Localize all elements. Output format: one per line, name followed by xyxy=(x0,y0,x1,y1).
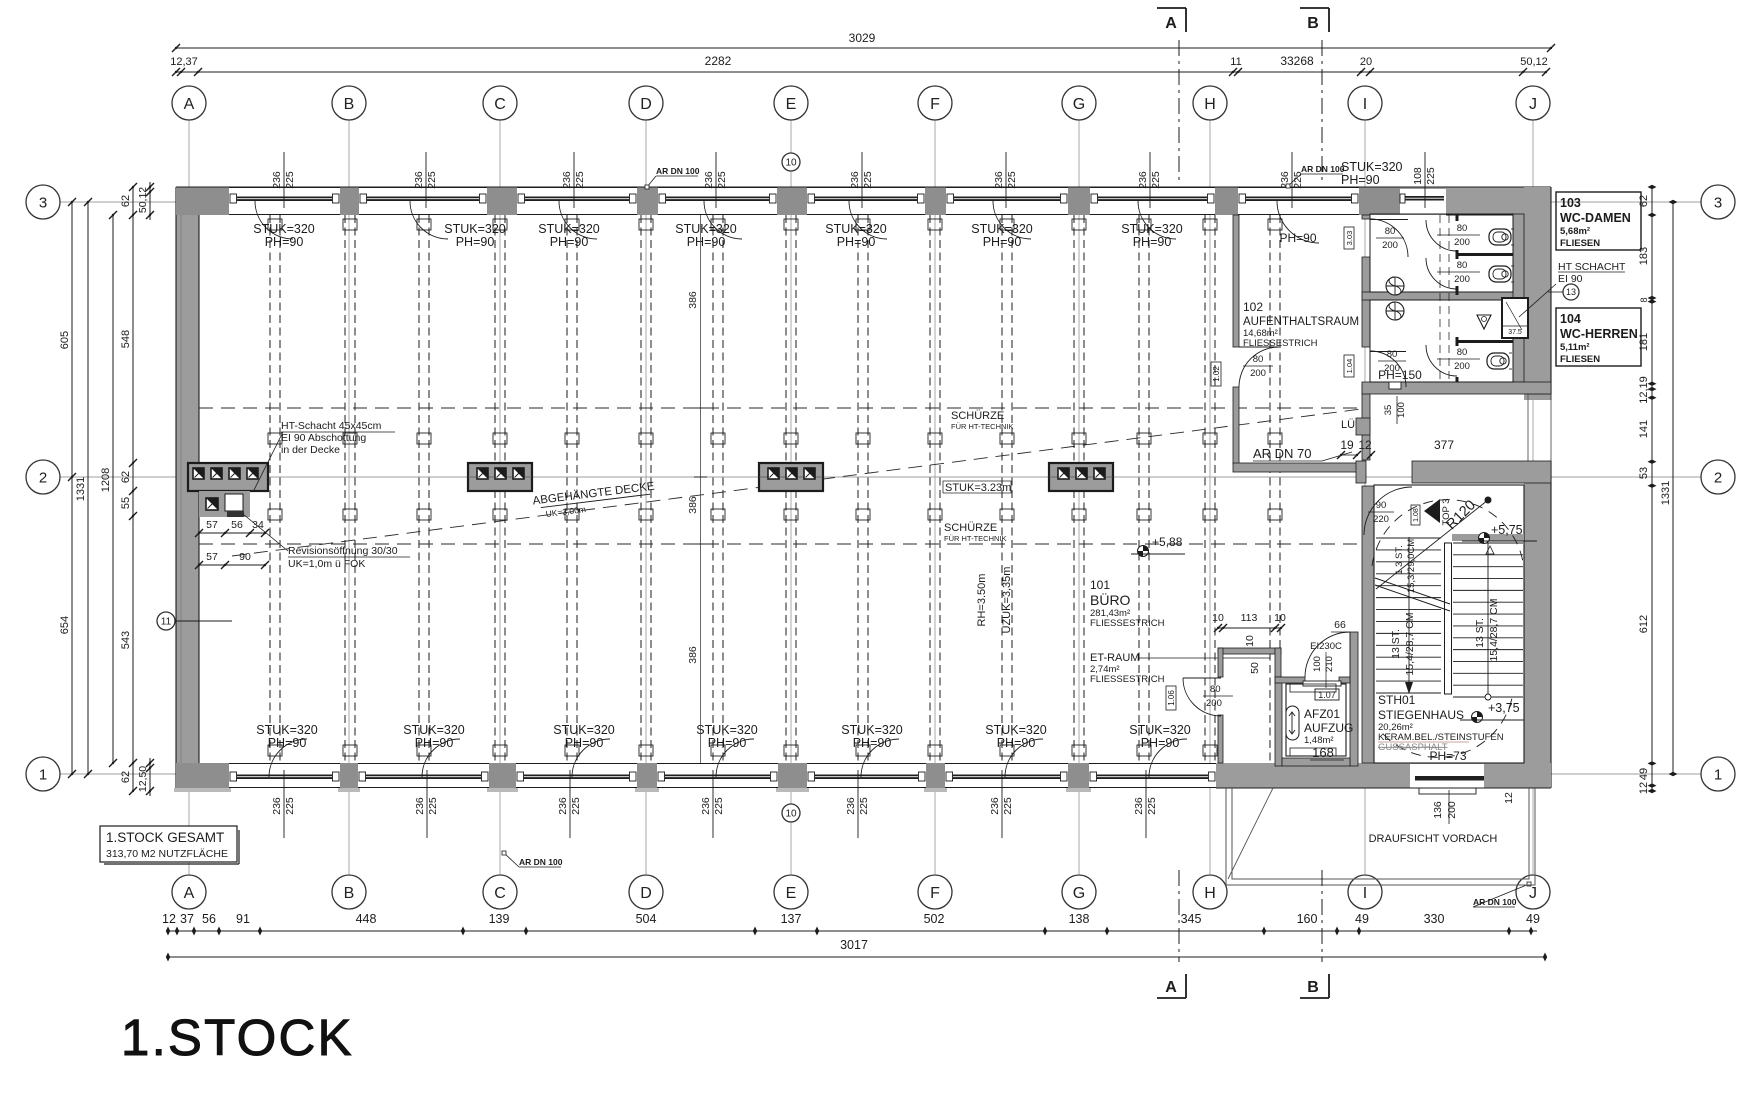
svg-text:AR DN 100: AR DN 100 xyxy=(519,857,563,867)
svg-text:PH=90: PH=90 xyxy=(983,235,1022,249)
svg-text:15,4/28,7 CM: 15,4/28,7 CM xyxy=(1404,612,1416,675)
svg-text:236: 236 xyxy=(989,797,1001,815)
svg-text:FLIESSESTRICH: FLIESSESTRICH xyxy=(1090,618,1165,629)
svg-text:104: 104 xyxy=(1560,312,1581,326)
svg-text:37: 37 xyxy=(180,912,194,926)
svg-text:12,37: 12,37 xyxy=(170,56,198,68)
svg-text:49: 49 xyxy=(1638,768,1650,780)
svg-text:STIEGENHAUS: STIEGENHAUS xyxy=(1378,708,1464,722)
svg-text:3.03: 3.03 xyxy=(1345,231,1354,246)
svg-text:F: F xyxy=(930,885,940,902)
svg-text:80: 80 xyxy=(1457,223,1468,234)
svg-text:1: 1 xyxy=(1714,766,1722,783)
svg-text:181: 181 xyxy=(1638,333,1650,351)
svg-text:225: 225 xyxy=(862,171,874,189)
svg-text:56: 56 xyxy=(202,912,216,926)
svg-text:FÜR HT-TECHNIK: FÜR HT-TECHNIK xyxy=(951,422,1014,431)
svg-text:53: 53 xyxy=(1638,467,1650,479)
svg-text:225: 225 xyxy=(1002,797,1014,815)
svg-text:200: 200 xyxy=(1446,801,1458,819)
svg-text:225: 225 xyxy=(1146,797,1158,815)
svg-text:HT SCHACHT: HT SCHACHT xyxy=(1558,261,1626,273)
svg-text:236: 236 xyxy=(414,797,426,815)
svg-text:G: G xyxy=(1073,96,1085,113)
svg-text:3: 3 xyxy=(39,194,47,211)
svg-text:502: 502 xyxy=(924,912,945,926)
svg-text:100: 100 xyxy=(1312,656,1323,672)
svg-text:SCHÜRZE: SCHÜRZE xyxy=(951,410,1004,422)
svg-text:50,12: 50,12 xyxy=(1520,56,1548,68)
svg-text:236: 236 xyxy=(413,171,425,189)
svg-text:I: I xyxy=(1363,885,1367,902)
svg-text:FLIESSESTRICH: FLIESSESTRICH xyxy=(1243,338,1318,349)
svg-text:WC-DAMEN: WC-DAMEN xyxy=(1560,211,1631,225)
svg-text:13: 13 xyxy=(1566,287,1576,297)
svg-text:STUK=320: STUK=320 xyxy=(256,723,318,737)
svg-text:11: 11 xyxy=(1230,56,1241,68)
svg-text:F: F xyxy=(930,96,940,113)
svg-text:UZUK=3,35m: UZUK=3,35m xyxy=(1001,567,1013,634)
svg-text:STUK=320: STUK=320 xyxy=(1121,222,1183,236)
svg-text:225: 225 xyxy=(427,797,439,815)
svg-text:1.04: 1.04 xyxy=(1345,359,1354,374)
svg-text:B: B xyxy=(1307,979,1319,996)
svg-text:103: 103 xyxy=(1560,196,1581,210)
svg-text:1208: 1208 xyxy=(100,468,112,492)
svg-text:168: 168 xyxy=(1312,745,1334,760)
svg-text:ET-RAUM: ET-RAUM xyxy=(1090,652,1140,664)
svg-text:AR DN 70: AR DN 70 xyxy=(1253,446,1312,461)
svg-text:FLIESEN: FLIESEN xyxy=(1560,354,1600,365)
svg-text:200: 200 xyxy=(1206,698,1222,709)
svg-text:10: 10 xyxy=(1274,612,1286,624)
svg-text:B: B xyxy=(344,885,355,902)
svg-text:AUFENTHALTSRAUM: AUFENTHALTSRAUM xyxy=(1243,316,1359,328)
svg-text:200: 200 xyxy=(1454,237,1470,248)
svg-text:1331: 1331 xyxy=(1660,481,1672,505)
svg-text:TOP 3: TOP 3 xyxy=(1441,498,1452,525)
svg-text:AFZ01: AFZ01 xyxy=(1304,707,1340,721)
svg-text:3: 3 xyxy=(1714,194,1722,211)
svg-text:3017: 3017 xyxy=(840,938,868,952)
svg-text:55: 55 xyxy=(120,497,132,509)
svg-text:Revisionsöffnung 30/30: Revisionsöffnung 30/30 xyxy=(288,545,398,557)
svg-text:37.5: 37.5 xyxy=(1508,329,1522,336)
svg-text:PH=150: PH=150 xyxy=(1378,368,1422,382)
svg-text:225: 225 xyxy=(1425,167,1437,185)
svg-text:B: B xyxy=(1307,15,1319,32)
svg-text:62: 62 xyxy=(1638,195,1650,207)
svg-text:WC-HERREN: WC-HERREN xyxy=(1560,327,1638,341)
svg-text:12: 12 xyxy=(1638,782,1650,794)
svg-text:141: 141 xyxy=(1638,420,1650,438)
svg-text:E: E xyxy=(786,96,797,113)
svg-text:STUK=320: STUK=320 xyxy=(985,723,1047,737)
svg-text:313,70 M2 NUTZFLÄCHE: 313,70 M2 NUTZFLÄCHE xyxy=(106,848,228,860)
svg-text:56: 56 xyxy=(231,519,243,531)
svg-text:13 ST.: 13 ST. xyxy=(1474,618,1486,648)
svg-text:80: 80 xyxy=(1457,347,1468,358)
svg-text:UK=1,0m ü FOK: UK=1,0m ü FOK xyxy=(288,558,365,570)
svg-text:PH=90: PH=90 xyxy=(268,736,307,750)
svg-text:225: 225 xyxy=(574,171,586,189)
svg-text:+3,75: +3,75 xyxy=(1488,701,1520,715)
svg-text:D: D xyxy=(640,885,652,902)
svg-text:13 ST.: 13 ST. xyxy=(1390,629,1402,659)
svg-text:1331: 1331 xyxy=(75,477,87,501)
svg-text:100: 100 xyxy=(1396,402,1407,418)
svg-text:35: 35 xyxy=(1383,405,1394,416)
svg-text:113: 113 xyxy=(1241,612,1258,624)
svg-text:G: G xyxy=(1073,885,1085,902)
svg-text:101: 101 xyxy=(1090,578,1110,592)
svg-text:12,50: 12,50 xyxy=(137,766,149,792)
svg-text:5,11m²: 5,11m² xyxy=(1560,342,1590,353)
svg-text:EI 90 Abschottung: EI 90 Abschottung xyxy=(281,432,366,444)
svg-text:345: 345 xyxy=(1181,912,1202,926)
svg-text:225: 225 xyxy=(858,797,870,815)
svg-text:BÜRO: BÜRO xyxy=(1090,591,1131,608)
svg-text:STUK=3.23m: STUK=3.23m xyxy=(945,482,1011,494)
svg-text:STUK=320: STUK=320 xyxy=(825,222,887,236)
svg-text:AUFZUG: AUFZUG xyxy=(1304,721,1353,735)
svg-text:J: J xyxy=(1529,96,1537,113)
svg-text:200: 200 xyxy=(1250,368,1266,379)
svg-text:1.07: 1.07 xyxy=(1318,690,1336,700)
svg-text:H: H xyxy=(1204,885,1216,902)
svg-text:605: 605 xyxy=(59,331,71,349)
svg-text:386: 386 xyxy=(687,291,699,309)
svg-text:A: A xyxy=(1165,979,1177,996)
svg-text:236: 236 xyxy=(703,171,715,189)
svg-text:15,3/29,0CM: 15,3/29,0CM xyxy=(1406,539,1417,593)
svg-text:50,12: 50,12 xyxy=(137,187,149,213)
svg-text:548: 548 xyxy=(120,330,132,348)
svg-text:386: 386 xyxy=(687,646,699,664)
svg-text:225: 225 xyxy=(426,171,438,189)
svg-text:STUK=320: STUK=320 xyxy=(1341,160,1403,174)
svg-text:136: 136 xyxy=(1432,801,1444,819)
svg-text:FLIESSESTRICH: FLIESSESTRICH xyxy=(1090,674,1165,685)
svg-text:STUK=320: STUK=320 xyxy=(675,222,737,236)
svg-text:PH=90: PH=90 xyxy=(1133,235,1172,249)
svg-text:236: 236 xyxy=(561,171,573,189)
svg-text:220: 220 xyxy=(1373,514,1389,525)
svg-text:137: 137 xyxy=(781,912,802,926)
svg-text:in der Decke: in der Decke xyxy=(281,444,340,456)
svg-text:236: 236 xyxy=(271,797,283,815)
svg-text:543: 543 xyxy=(120,631,132,649)
svg-text:AR DN 100: AR DN 100 xyxy=(656,166,700,176)
svg-text:+5,75: +5,75 xyxy=(1491,523,1523,537)
svg-text:2: 2 xyxy=(39,469,47,486)
svg-text:PH=90: PH=90 xyxy=(415,736,454,750)
svg-text:STUK=320: STUK=320 xyxy=(1129,723,1191,737)
svg-text:PH=90: PH=90 xyxy=(853,736,892,750)
svg-text:PH=90: PH=90 xyxy=(1341,173,1380,187)
svg-text:STUK=320: STUK=320 xyxy=(444,222,506,236)
svg-text:1.06: 1.06 xyxy=(1167,690,1176,706)
svg-text:10: 10 xyxy=(785,809,797,820)
svg-text:49: 49 xyxy=(1355,912,1369,926)
svg-text:20: 20 xyxy=(1360,56,1372,68)
svg-text:200: 200 xyxy=(1382,240,1398,251)
svg-text:504: 504 xyxy=(636,912,657,926)
svg-text:10: 10 xyxy=(1212,612,1224,624)
svg-text:200: 200 xyxy=(1454,274,1470,285)
svg-text:STUK=320: STUK=320 xyxy=(538,222,600,236)
svg-text:34: 34 xyxy=(252,519,264,531)
svg-text:80: 80 xyxy=(1387,349,1398,360)
svg-text:2: 2 xyxy=(1714,469,1722,486)
svg-text:+5,88: +5,88 xyxy=(1152,535,1183,549)
svg-text:225: 225 xyxy=(1006,171,1018,189)
svg-text:E: E xyxy=(786,885,797,902)
svg-text:236: 236 xyxy=(1133,797,1145,815)
svg-text:C: C xyxy=(494,96,506,113)
svg-text:PH=90: PH=90 xyxy=(456,235,495,249)
svg-text:80: 80 xyxy=(1210,684,1221,695)
svg-text:108: 108 xyxy=(1412,167,1424,185)
svg-text:PH=90: PH=90 xyxy=(837,235,876,249)
svg-text:236: 236 xyxy=(845,797,857,815)
svg-text:LÜ: LÜ xyxy=(1341,419,1355,431)
svg-text:62: 62 xyxy=(120,771,132,783)
svg-text:12: 12 xyxy=(162,912,176,926)
svg-text:STH01: STH01 xyxy=(1378,693,1416,707)
svg-text:19: 19 xyxy=(1340,438,1354,452)
svg-text:448: 448 xyxy=(356,912,377,926)
svg-text:612: 612 xyxy=(1638,615,1650,633)
svg-text:62: 62 xyxy=(120,471,132,483)
svg-text:80: 80 xyxy=(1253,354,1264,365)
svg-text:90: 90 xyxy=(239,551,251,563)
svg-text:12: 12 xyxy=(1358,438,1372,452)
svg-text:5,68m²: 5,68m² xyxy=(1560,226,1590,237)
svg-text:PH=73: PH=73 xyxy=(1429,749,1466,763)
svg-text:PH=90: PH=90 xyxy=(265,235,304,249)
svg-text:STUK=320: STUK=320 xyxy=(553,723,615,737)
svg-text:8: 8 xyxy=(1639,297,1649,302)
svg-text:15,4/28,7 CM: 15,4/28,7 CM xyxy=(1488,598,1500,661)
svg-text:EI230C: EI230C xyxy=(1310,641,1342,652)
svg-text:STUK=320: STUK=320 xyxy=(403,723,465,737)
svg-text:PH=90: PH=90 xyxy=(997,736,1036,750)
svg-text:PH=90: PH=90 xyxy=(550,235,589,249)
svg-text:1.02: 1.02 xyxy=(1212,366,1221,382)
svg-text:PH=90: PH=90 xyxy=(565,736,604,750)
svg-text:330: 330 xyxy=(1424,912,1445,926)
svg-text:66: 66 xyxy=(1334,619,1346,631)
svg-text:D: D xyxy=(640,96,652,113)
svg-text:PH=90: PH=90 xyxy=(687,235,726,249)
svg-text:33268: 33268 xyxy=(1280,54,1314,68)
svg-text:H: H xyxy=(1204,96,1216,113)
svg-text:PH=90: PH=90 xyxy=(708,736,747,750)
svg-text:57: 57 xyxy=(206,551,218,563)
svg-text:225: 225 xyxy=(1150,171,1162,189)
svg-text:STUK=320: STUK=320 xyxy=(971,222,1033,236)
svg-text:386: 386 xyxy=(687,496,699,514)
svg-text:62: 62 xyxy=(120,195,132,207)
svg-text:102: 102 xyxy=(1243,300,1263,314)
svg-text:236: 236 xyxy=(700,797,712,815)
svg-text:3029: 3029 xyxy=(849,31,876,45)
svg-text:STUK=320: STUK=320 xyxy=(696,723,758,737)
svg-text:236: 236 xyxy=(557,797,569,815)
svg-text:50: 50 xyxy=(1249,662,1261,674)
svg-text:654: 654 xyxy=(59,616,71,634)
svg-text:12,19: 12,19 xyxy=(1638,376,1650,404)
svg-text:377: 377 xyxy=(1434,438,1454,452)
svg-text:49: 49 xyxy=(1526,912,1540,926)
svg-text:1.STOCK GESAMT: 1.STOCK GESAMT xyxy=(106,830,224,845)
svg-text:225: 225 xyxy=(284,797,296,815)
svg-text:C: C xyxy=(494,885,506,902)
svg-text:11: 11 xyxy=(161,617,172,628)
svg-text:RH=3.50m: RH=3.50m xyxy=(976,574,988,627)
svg-text:1.STOCK: 1.STOCK xyxy=(121,1009,354,1066)
svg-text:236: 236 xyxy=(849,171,861,189)
svg-text:225: 225 xyxy=(716,171,728,189)
svg-text:1: 1 xyxy=(39,766,47,783)
svg-text:A: A xyxy=(184,96,195,113)
svg-text:A: A xyxy=(184,885,195,902)
svg-text:AR DN 100: AR DN 100 xyxy=(1473,897,1517,907)
svg-text:225: 225 xyxy=(713,797,725,815)
svg-text:J: J xyxy=(1529,885,1537,902)
svg-text:B: B xyxy=(344,96,355,113)
svg-text:10: 10 xyxy=(785,158,797,169)
svg-text:90: 90 xyxy=(1376,500,1387,511)
svg-text:200: 200 xyxy=(1454,361,1470,372)
svg-text:236: 236 xyxy=(993,171,1005,189)
svg-text:PH=90: PH=90 xyxy=(1141,736,1180,750)
svg-text:139: 139 xyxy=(489,912,510,926)
svg-text:10: 10 xyxy=(1244,635,1256,647)
svg-text:AR DN 100: AR DN 100 xyxy=(1301,164,1345,174)
svg-text:80: 80 xyxy=(1457,260,1468,271)
svg-text:2282: 2282 xyxy=(705,54,732,68)
svg-text:EI 90: EI 90 xyxy=(1558,273,1583,285)
svg-text:FÜR HT-TECHNIK: FÜR HT-TECHNIK xyxy=(944,534,1007,543)
svg-text:91: 91 xyxy=(236,912,250,926)
svg-text:225: 225 xyxy=(284,171,296,189)
svg-text:160: 160 xyxy=(1297,912,1318,926)
svg-text:A: A xyxy=(1165,15,1177,32)
svg-text:225: 225 xyxy=(570,797,582,815)
svg-text:12: 12 xyxy=(1503,792,1515,804)
svg-text:STUK=320: STUK=320 xyxy=(841,723,903,737)
svg-text:FLIESEN: FLIESEN xyxy=(1560,238,1600,249)
svg-text:DRAUFSICHT VORDACH: DRAUFSICHT VORDACH xyxy=(1369,833,1498,845)
svg-text:236: 236 xyxy=(271,171,283,189)
svg-text:138: 138 xyxy=(1069,912,1090,926)
svg-text:236: 236 xyxy=(1137,171,1149,189)
svg-text:57: 57 xyxy=(206,519,218,531)
svg-text:SCHÜRZE: SCHÜRZE xyxy=(944,522,997,534)
svg-text:I: I xyxy=(1363,96,1367,113)
svg-text:80: 80 xyxy=(1385,226,1396,237)
svg-text:HT-Schacht 45x45cm: HT-Schacht 45x45cm xyxy=(281,420,382,432)
svg-text:1.08: 1.08 xyxy=(1413,508,1420,522)
